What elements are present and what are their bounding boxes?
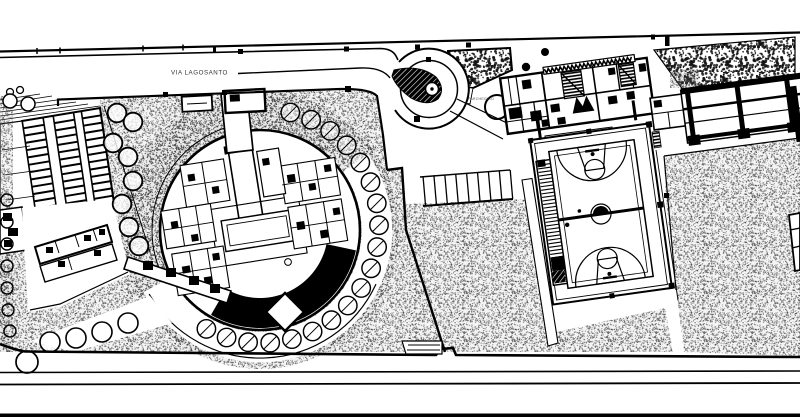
svg-text:VIA LAGOSANTO: VIA LAGOSANTO — [171, 70, 228, 77]
svg-text:PARCHEGGIO: PARCHEGGIO — [468, 97, 494, 101]
